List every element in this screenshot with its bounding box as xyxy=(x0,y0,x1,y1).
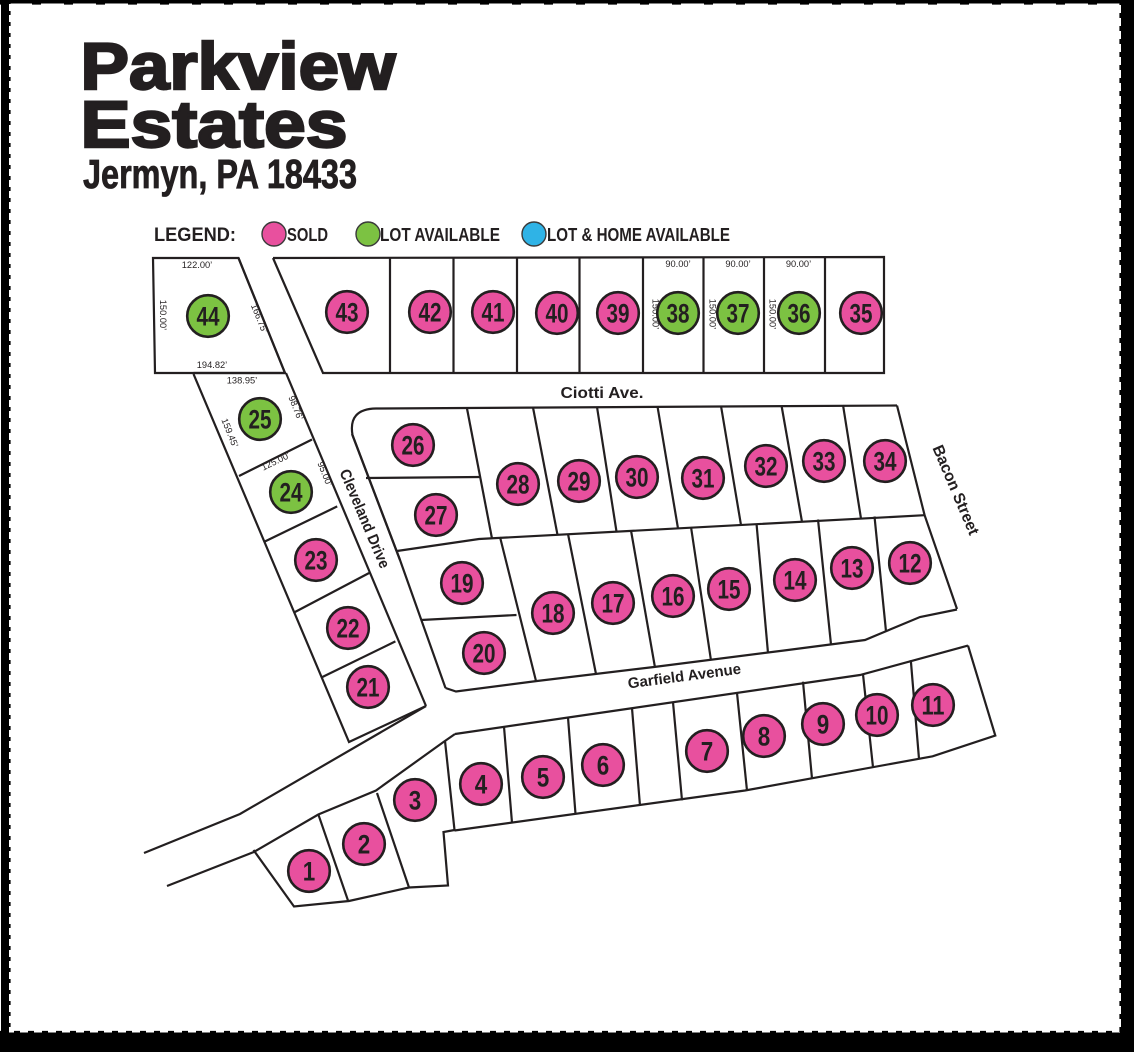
svg-text:SOLD: SOLD xyxy=(287,225,328,245)
svg-text:43: 43 xyxy=(336,298,359,328)
svg-text:6: 6 xyxy=(597,751,610,781)
svg-text:32: 32 xyxy=(755,452,778,482)
svg-text:8: 8 xyxy=(758,722,771,752)
svg-text:28: 28 xyxy=(507,470,530,500)
svg-text:38: 38 xyxy=(667,299,690,329)
svg-text:1: 1 xyxy=(303,857,316,887)
svg-text:42: 42 xyxy=(419,298,442,328)
svg-text:22: 22 xyxy=(337,614,360,644)
svg-text:10: 10 xyxy=(866,701,889,731)
svg-text:16: 16 xyxy=(662,582,685,612)
svg-text:41: 41 xyxy=(482,298,505,328)
svg-text:9: 9 xyxy=(817,710,830,740)
svg-text:20: 20 xyxy=(473,639,496,669)
svg-text:194.82’: 194.82’ xyxy=(197,360,228,370)
svg-text:24: 24 xyxy=(280,478,303,508)
svg-text:19: 19 xyxy=(451,569,474,599)
svg-text:36: 36 xyxy=(788,299,811,329)
svg-text:LEGEND:: LEGEND: xyxy=(154,225,236,246)
svg-text:Estates: Estates xyxy=(81,87,348,161)
svg-text:30: 30 xyxy=(626,463,649,493)
svg-text:27: 27 xyxy=(425,501,448,531)
svg-text:18: 18 xyxy=(542,599,565,629)
svg-text:35: 35 xyxy=(850,299,873,329)
svg-text:25: 25 xyxy=(249,405,272,435)
svg-text:17: 17 xyxy=(602,589,625,619)
svg-text:33: 33 xyxy=(813,447,836,477)
svg-text:LOT AVAILABLE: LOT AVAILABLE xyxy=(380,225,500,245)
svg-text:13: 13 xyxy=(841,554,864,584)
svg-text:14: 14 xyxy=(784,566,807,596)
svg-text:40: 40 xyxy=(546,299,569,329)
svg-text:Jermyn, PA 18433: Jermyn, PA 18433 xyxy=(83,151,357,197)
svg-text:29: 29 xyxy=(568,467,591,497)
svg-text:150.00’: 150.00’ xyxy=(768,299,778,330)
svg-text:4: 4 xyxy=(475,770,488,800)
svg-text:5: 5 xyxy=(537,763,550,793)
svg-text:44: 44 xyxy=(197,302,220,332)
svg-text:37: 37 xyxy=(727,299,750,329)
svg-text:138.95’: 138.95’ xyxy=(227,376,258,386)
svg-text:Ciotti Ave.: Ciotti Ave. xyxy=(561,385,644,402)
svg-text:21: 21 xyxy=(357,673,380,703)
svg-text:90.00’: 90.00’ xyxy=(725,259,750,269)
svg-text:3: 3 xyxy=(409,786,422,816)
svg-text:11: 11 xyxy=(922,691,945,721)
svg-text:122.00’: 122.00’ xyxy=(182,260,213,270)
svg-text:15: 15 xyxy=(718,575,741,605)
svg-text:7: 7 xyxy=(701,737,714,767)
svg-text:2: 2 xyxy=(358,830,371,860)
svg-text:90.00’: 90.00’ xyxy=(786,259,811,269)
svg-text:31: 31 xyxy=(692,464,715,494)
svg-text:LOT & HOME AVAILABLE: LOT & HOME AVAILABLE xyxy=(547,225,730,245)
svg-text:150.00’: 150.00’ xyxy=(158,300,168,331)
svg-text:34: 34 xyxy=(874,447,897,477)
svg-text:12: 12 xyxy=(899,549,922,579)
svg-text:90.00’: 90.00’ xyxy=(665,259,690,269)
svg-text:39: 39 xyxy=(607,299,630,329)
svg-text:26: 26 xyxy=(402,431,425,461)
svg-text:23: 23 xyxy=(305,546,328,576)
